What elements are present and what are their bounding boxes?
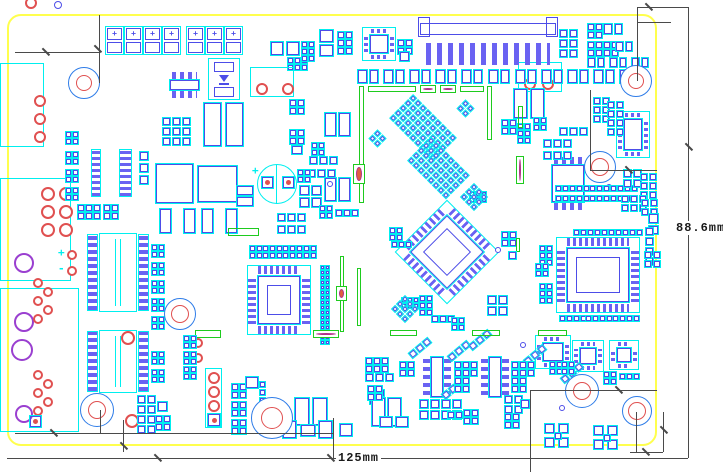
pad-cell bbox=[580, 128, 587, 135]
dimension-line bbox=[15, 52, 100, 53]
pad-grid bbox=[184, 352, 196, 364]
drill-dot bbox=[212, 418, 217, 423]
pad-cell bbox=[597, 186, 602, 191]
pad-cell bbox=[418, 158, 424, 164]
pad-cell bbox=[564, 140, 571, 147]
pad-cell bbox=[346, 48, 352, 54]
pad-cell bbox=[471, 370, 477, 376]
pad-cell bbox=[616, 230, 621, 235]
smd-pad bbox=[237, 186, 253, 195]
pin-row bbox=[557, 248, 565, 302]
pad-grid bbox=[505, 414, 519, 428]
pad-cell bbox=[140, 176, 148, 184]
smd-pad bbox=[462, 70, 471, 83]
pad-cell bbox=[156, 424, 162, 430]
pad-cell bbox=[321, 321, 324, 324]
smd-pad bbox=[292, 146, 302, 154]
pad-grid bbox=[184, 367, 196, 379]
pad-grid bbox=[278, 214, 305, 221]
coil-line bbox=[115, 239, 116, 306]
pad-cell bbox=[298, 226, 305, 233]
pad-cell bbox=[608, 111, 614, 117]
pad-cell bbox=[152, 281, 157, 286]
fuse-element bbox=[356, 167, 362, 181]
smd-pad bbox=[554, 70, 563, 83]
pad-cell bbox=[159, 377, 164, 382]
ic-body bbox=[543, 343, 563, 361]
dimension-line bbox=[15, 433, 333, 434]
pad-cell bbox=[368, 394, 374, 400]
pad-cell bbox=[617, 111, 623, 117]
pin-row bbox=[88, 332, 97, 391]
pad-cell bbox=[420, 296, 425, 301]
fuse-component bbox=[516, 156, 524, 184]
ic-body bbox=[617, 348, 631, 362]
pad-cell bbox=[499, 296, 507, 304]
pad-cell bbox=[520, 362, 526, 368]
smd-pad bbox=[384, 70, 393, 83]
smd-pad bbox=[396, 417, 408, 427]
pad-cell bbox=[159, 359, 164, 364]
pad-cell bbox=[366, 358, 372, 364]
two-pad-component bbox=[616, 42, 632, 51]
pad-cell bbox=[406, 242, 411, 247]
pad-cell bbox=[309, 42, 314, 47]
pad-cell bbox=[420, 411, 428, 419]
pad-cell bbox=[191, 359, 196, 364]
pad-cell bbox=[408, 370, 414, 376]
through-hole-pad bbox=[256, 83, 268, 95]
dimension-line bbox=[530, 390, 531, 472]
cap-pad bbox=[145, 42, 160, 54]
pad-cell bbox=[330, 157, 337, 164]
through-hole-pad bbox=[33, 314, 43, 324]
pad-cell bbox=[428, 168, 434, 174]
pad-cell bbox=[302, 42, 307, 47]
pad-cell bbox=[152, 252, 157, 257]
pin-row bbox=[633, 349, 637, 361]
pad-cell bbox=[488, 296, 496, 304]
pad-cell bbox=[328, 170, 335, 177]
pad-cell bbox=[336, 210, 342, 216]
cap-pad: + bbox=[207, 28, 222, 40]
dimension-line bbox=[636, 412, 637, 452]
pad-cell bbox=[321, 296, 324, 299]
cap-pad: + bbox=[164, 28, 179, 40]
electrolytic-capacitor: + bbox=[225, 27, 242, 54]
pad-cell bbox=[547, 246, 552, 251]
pad-cell bbox=[376, 374, 383, 381]
smd-pad bbox=[620, 58, 627, 67]
pad-grid bbox=[290, 130, 304, 144]
pad-cell bbox=[148, 396, 155, 403]
smd-pad bbox=[616, 42, 623, 51]
pad-cell bbox=[159, 352, 164, 357]
pad-cell bbox=[302, 65, 307, 70]
pad-cell bbox=[622, 196, 628, 202]
through-hole-pad bbox=[33, 370, 43, 380]
pad-cell bbox=[510, 120, 516, 126]
pad-cell bbox=[597, 196, 602, 201]
pad-cell bbox=[184, 352, 189, 357]
pad-cell bbox=[453, 400, 461, 408]
pad-cell bbox=[604, 196, 609, 201]
through-hole-pad bbox=[33, 278, 43, 288]
pad-cell bbox=[408, 362, 414, 368]
keepout-bar bbox=[390, 330, 417, 336]
pad-cell bbox=[366, 374, 373, 381]
smd-pad bbox=[615, 24, 623, 34]
pad-cell bbox=[138, 396, 145, 403]
pad-cell bbox=[634, 374, 639, 379]
pad-grid bbox=[560, 30, 577, 57]
pad-cell bbox=[73, 188, 78, 193]
pad-cell bbox=[66, 188, 71, 193]
pad-cell bbox=[427, 303, 432, 308]
pad-cell bbox=[472, 410, 478, 416]
pad-cell bbox=[654, 261, 660, 267]
pad-cell bbox=[570, 40, 577, 47]
pad-cell bbox=[191, 352, 196, 357]
mounting-hole bbox=[622, 396, 652, 426]
pad-cell bbox=[510, 128, 516, 134]
pad-grid bbox=[534, 118, 546, 130]
through-hole-pad bbox=[125, 414, 139, 428]
pad-cell bbox=[594, 440, 603, 449]
pad-cell bbox=[545, 424, 554, 433]
pad-cell bbox=[463, 370, 469, 376]
pad-cell bbox=[399, 242, 404, 247]
pad-cell bbox=[423, 153, 429, 159]
ic-body-inner bbox=[267, 285, 291, 315]
two-pad-component bbox=[410, 70, 430, 83]
pad-cell bbox=[463, 386, 469, 392]
fuse-component bbox=[313, 330, 339, 338]
pad-cell bbox=[560, 30, 567, 37]
pad-cell bbox=[456, 412, 462, 418]
smd-pad bbox=[160, 209, 171, 233]
pad-cell bbox=[453, 173, 459, 179]
pad-grid bbox=[594, 98, 609, 122]
smd-pad bbox=[204, 103, 221, 146]
pad-cell bbox=[392, 242, 397, 247]
pad-cell bbox=[260, 390, 265, 395]
fuse-component bbox=[440, 85, 456, 93]
through-hole-pad bbox=[327, 181, 333, 187]
pad-cell bbox=[344, 210, 350, 216]
pad-cell bbox=[574, 230, 579, 235]
pad-cell bbox=[159, 252, 164, 257]
smd-pad bbox=[339, 178, 350, 201]
dimension-line bbox=[590, 90, 591, 170]
fuse-element bbox=[519, 159, 521, 181]
drill-dot bbox=[265, 180, 270, 185]
pin-row bbox=[364, 36, 368, 52]
pad-cell bbox=[418, 148, 424, 154]
pad-cell bbox=[459, 325, 464, 330]
smd-pad bbox=[246, 377, 258, 388]
pad-cell bbox=[152, 324, 157, 329]
two-pad-component bbox=[320, 30, 333, 56]
pad-grid bbox=[152, 370, 164, 382]
pad-grid bbox=[152, 352, 164, 364]
pad-cell bbox=[302, 56, 307, 61]
cap-pad bbox=[207, 42, 222, 54]
connector-bar bbox=[420, 23, 556, 35]
pad-cell bbox=[577, 196, 582, 201]
pad-cell bbox=[152, 352, 157, 357]
pad-cell bbox=[443, 182, 449, 188]
pad-grid bbox=[464, 410, 478, 424]
pad-cell bbox=[277, 253, 282, 258]
pad-cell bbox=[232, 402, 238, 408]
pad-grid bbox=[392, 242, 411, 247]
pad-cell bbox=[159, 270, 164, 275]
pad-cell bbox=[631, 196, 637, 202]
qfp-ic bbox=[557, 238, 639, 312]
through-hole-pad bbox=[43, 305, 53, 315]
keepout-bar bbox=[368, 86, 416, 92]
pad-cell bbox=[654, 252, 660, 258]
pad-cell bbox=[415, 110, 421, 116]
square-pad bbox=[30, 416, 41, 427]
keepout-bar bbox=[516, 238, 520, 252]
pad-cell bbox=[395, 110, 401, 116]
pad-cell bbox=[138, 426, 145, 433]
pad-cell bbox=[428, 158, 434, 164]
pad-cell bbox=[390, 228, 395, 233]
pad-cell bbox=[600, 316, 605, 321]
cap-pad bbox=[126, 42, 141, 54]
pad-cell bbox=[448, 168, 454, 174]
pad-cell bbox=[402, 306, 408, 312]
pad-cell bbox=[184, 336, 189, 341]
smd-pad bbox=[606, 70, 615, 83]
pad-cell bbox=[438, 178, 444, 184]
pin-row bbox=[139, 332, 148, 391]
pad-grid bbox=[586, 316, 612, 321]
pad-cell bbox=[173, 118, 180, 125]
through-hole-pad bbox=[559, 405, 565, 411]
pad-cell bbox=[159, 263, 164, 268]
pad-cell bbox=[376, 386, 382, 392]
pad-cell bbox=[588, 42, 594, 48]
pad-cell bbox=[570, 30, 577, 37]
pad-cell bbox=[608, 426, 617, 435]
pin-row bbox=[172, 91, 197, 98]
pad-cell bbox=[617, 120, 623, 126]
pad-cell bbox=[567, 316, 572, 321]
smd-pad bbox=[521, 400, 529, 408]
pad-cell bbox=[455, 362, 461, 368]
smd-pad bbox=[528, 70, 537, 83]
smd-pad bbox=[531, 89, 544, 118]
fuse-component bbox=[336, 286, 347, 301]
pad-cell bbox=[298, 214, 305, 221]
pad-cell bbox=[499, 307, 507, 315]
pad-cell bbox=[518, 131, 523, 136]
pad-cell bbox=[326, 306, 329, 309]
smd-pad bbox=[489, 70, 498, 83]
pad-grid bbox=[66, 132, 78, 144]
pad-cell bbox=[505, 422, 511, 428]
pad-cell bbox=[440, 135, 446, 141]
fuse-element bbox=[316, 333, 336, 335]
keepout-bar bbox=[228, 228, 259, 236]
pad-cell bbox=[240, 392, 246, 398]
pad-grid bbox=[336, 210, 358, 216]
pad-cell bbox=[611, 186, 616, 191]
pad-cell bbox=[618, 186, 623, 191]
pad-cell bbox=[525, 124, 530, 129]
pad-cell bbox=[547, 291, 552, 296]
smd-pad bbox=[516, 70, 525, 83]
pad-cell bbox=[297, 253, 302, 258]
pad-grid bbox=[544, 140, 571, 147]
pad-cell bbox=[544, 152, 551, 159]
pad-grid bbox=[310, 157, 337, 164]
pad-cell bbox=[320, 206, 325, 211]
pad-cell bbox=[623, 230, 628, 235]
pin-row bbox=[481, 359, 488, 395]
keepout-bar bbox=[538, 330, 567, 336]
pad-cell bbox=[562, 369, 567, 374]
pad-grid bbox=[312, 143, 324, 155]
pcb-layout-canvas: 125mm 88.6mm +-+-++++++++ bbox=[0, 0, 723, 472]
pad-cell bbox=[563, 196, 568, 201]
pad-cell bbox=[410, 115, 416, 121]
pad-cell bbox=[471, 194, 477, 200]
through-hole-pad bbox=[54, 1, 62, 9]
drill-hole bbox=[628, 73, 644, 89]
pad-grid bbox=[308, 170, 335, 177]
through-hole-pad bbox=[34, 95, 46, 107]
pad-cell bbox=[326, 266, 329, 269]
pad-cell bbox=[505, 406, 512, 413]
pad-cell bbox=[159, 288, 164, 293]
square-pad bbox=[283, 177, 294, 188]
pad-cell bbox=[525, 131, 530, 136]
pad-cell bbox=[73, 152, 78, 157]
coil-line bbox=[120, 239, 121, 306]
pad-cell bbox=[627, 316, 632, 321]
through-hole-pad bbox=[14, 312, 34, 332]
pad-cell bbox=[283, 253, 288, 258]
pad-cell bbox=[159, 281, 164, 286]
pad-cell bbox=[159, 370, 164, 375]
smd-pad bbox=[320, 45, 333, 57]
pad-cell bbox=[588, 230, 593, 235]
pad-grid bbox=[512, 362, 534, 376]
pad-cell bbox=[321, 326, 324, 329]
pad-cell bbox=[232, 410, 238, 416]
pad-cell bbox=[400, 362, 406, 368]
pin-row bbox=[423, 359, 430, 395]
pad-cell bbox=[590, 186, 595, 191]
through-hole-pad bbox=[208, 400, 220, 412]
pad-cell bbox=[191, 336, 196, 341]
pad-cell bbox=[297, 246, 302, 251]
pad-cell bbox=[405, 120, 411, 126]
pad-cell bbox=[300, 198, 309, 207]
pad-cell bbox=[641, 174, 647, 180]
pad-cell bbox=[405, 110, 411, 116]
pad-cell bbox=[471, 362, 477, 368]
pad-cell bbox=[78, 205, 84, 211]
pad-cell bbox=[311, 253, 316, 258]
pad-grid bbox=[163, 118, 190, 145]
pad-cell bbox=[191, 374, 196, 379]
two-pad-component bbox=[568, 70, 588, 83]
drill-dot bbox=[33, 419, 38, 424]
pad-cell bbox=[512, 378, 518, 384]
pad-cell bbox=[423, 163, 429, 169]
smd-pad bbox=[588, 58, 595, 67]
pad-cell bbox=[584, 186, 589, 191]
pad-cell bbox=[232, 420, 238, 426]
pad-cell bbox=[298, 108, 304, 114]
smd-pad bbox=[325, 113, 336, 136]
pad-cell bbox=[152, 359, 157, 364]
pad-cell bbox=[374, 366, 380, 372]
pad-cell bbox=[631, 205, 637, 211]
pad-cell bbox=[452, 325, 457, 330]
pad-cell bbox=[547, 298, 552, 303]
diode-component bbox=[208, 58, 240, 100]
through-hole-pad bbox=[41, 187, 55, 201]
pad-grid bbox=[452, 318, 464, 330]
pad-cell bbox=[455, 378, 461, 384]
pad-cell bbox=[240, 420, 246, 426]
pad-cell bbox=[540, 246, 545, 251]
pad-cell bbox=[346, 32, 352, 38]
pad-grid bbox=[104, 205, 118, 219]
pad-cell bbox=[433, 163, 439, 169]
pad-cell bbox=[397, 301, 403, 307]
pad-cell bbox=[326, 341, 329, 344]
pad-grid bbox=[588, 42, 618, 56]
through-hole-pad bbox=[495, 247, 501, 253]
pad-cell bbox=[309, 56, 314, 61]
pad-cell bbox=[594, 116, 600, 122]
pin-row bbox=[371, 29, 387, 33]
diode-symbol bbox=[219, 75, 229, 82]
fuse-element bbox=[423, 88, 433, 90]
pad-cell bbox=[398, 40, 404, 46]
pad-cell bbox=[94, 213, 100, 219]
pad-cell bbox=[420, 400, 428, 408]
pad-cell bbox=[326, 281, 329, 284]
drill-hole bbox=[261, 407, 283, 429]
through-hole-pad bbox=[67, 250, 77, 260]
pad-grid bbox=[232, 384, 246, 398]
pad-cell bbox=[66, 195, 71, 200]
smd-pad bbox=[474, 70, 483, 83]
pad-cell bbox=[400, 115, 406, 121]
pad-cell bbox=[321, 286, 324, 289]
pad-cell bbox=[420, 125, 426, 131]
pad-cell bbox=[502, 232, 508, 238]
smd-pad bbox=[610, 58, 617, 67]
pad-cell bbox=[420, 310, 425, 315]
pad-cell bbox=[390, 235, 395, 240]
smd-pad bbox=[542, 70, 551, 83]
pad-cell bbox=[366, 366, 372, 372]
pin-row bbox=[611, 349, 615, 361]
pad-cell bbox=[562, 362, 567, 367]
pad-cell bbox=[319, 150, 324, 155]
smd-pad bbox=[555, 433, 561, 439]
